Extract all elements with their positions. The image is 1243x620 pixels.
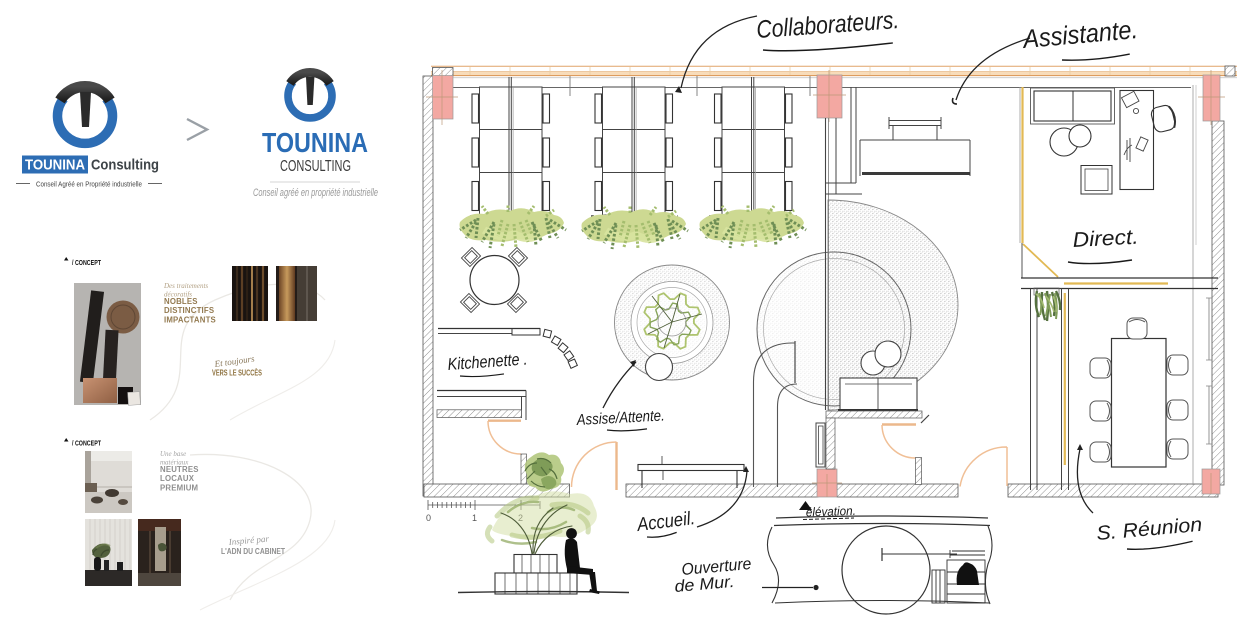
svg-text:TOUNINA: TOUNINA xyxy=(25,158,85,174)
svg-text:Accueil.: Accueil. xyxy=(635,508,696,536)
svg-text:Des traitements: Des traitements xyxy=(163,282,208,290)
svg-text:Collaborateurs.: Collaborateurs. xyxy=(755,6,900,44)
svg-text:TOUNINA: TOUNINA xyxy=(262,127,368,158)
svg-text:CONSULTING: CONSULTING xyxy=(280,158,351,175)
svg-text:1: 1 xyxy=(472,513,477,523)
svg-text:Kitchenette .: Kitchenette . xyxy=(447,349,528,374)
svg-text:Assise/Attente.: Assise/Attente. xyxy=(575,407,665,429)
svg-text:Et toujours: Et toujours xyxy=(213,353,256,369)
svg-text:/ CONCEPT: / CONCEPT xyxy=(72,439,101,448)
svg-text:de Mur.: de Mur. xyxy=(674,573,735,596)
svg-text:Inspiré par: Inspiré par xyxy=(227,533,269,547)
svg-text:L'ADN DU CABINET: L'ADN DU CABINET xyxy=(221,547,285,556)
svg-text:Consulting: Consulting xyxy=(91,157,159,174)
svg-text:Assistante.: Assistante. xyxy=(1020,14,1139,54)
svg-text:DISTINCTIFS: DISTINCTIFS xyxy=(164,306,214,315)
svg-text:Direct.: Direct. xyxy=(1072,226,1139,252)
svg-text:Une base: Une base xyxy=(160,450,186,458)
svg-text:IMPACTANTS: IMPACTANTS xyxy=(164,315,216,324)
svg-text:0: 0 xyxy=(426,513,431,523)
svg-text:VERS LE SUCCÈS: VERS LE SUCCÈS xyxy=(212,368,262,378)
svg-text:LOCAUX: LOCAUX xyxy=(160,474,195,483)
svg-text:élévation.: élévation. xyxy=(806,504,856,520)
svg-text:S. Réunion: S. Réunion xyxy=(1096,514,1204,545)
svg-text:/ CONCEPT: / CONCEPT xyxy=(72,258,101,267)
svg-text:Conseil agréé en propriété ind: Conseil agréé en propriété industrielle xyxy=(253,187,378,199)
svg-text:Conseil Agréé en Propriété ind: Conseil Agréé en Propriété industrielle xyxy=(36,180,142,189)
svg-text:PREMIUM: PREMIUM xyxy=(160,483,198,492)
svg-text:NEUTRES: NEUTRES xyxy=(160,465,199,474)
svg-text:NOBLES: NOBLES xyxy=(164,297,198,306)
